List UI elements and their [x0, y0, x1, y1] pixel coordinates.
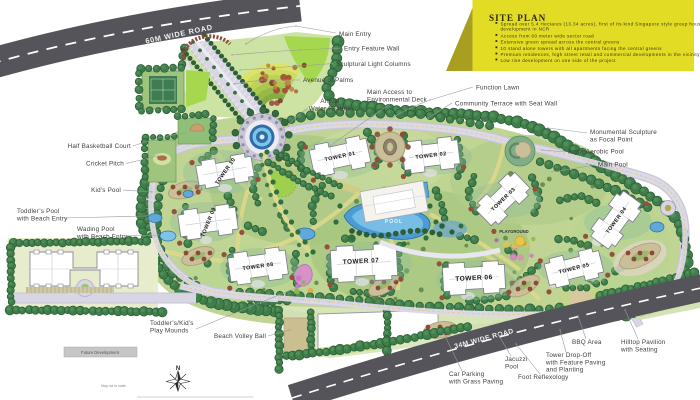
svg-text:Entry Feature Wall: Entry Feature Wall [344, 46, 400, 53]
svg-text:Low rise development on one si: Low rise development on one side of the … [501, 58, 617, 63]
svg-text:10 stand alone towers with all: 10 stand alone towers with all apartment… [501, 46, 663, 51]
svg-text:Aqua-Aerobic Pool: Aqua-Aerobic Pool [568, 149, 624, 156]
svg-text:Community Terrace with Seat Wa: Community Terrace with Seat Wall [455, 101, 557, 108]
svg-text:Future Development: Future Development [81, 350, 120, 355]
svg-text:Beach Volley Ball: Beach Volley Ball [214, 333, 266, 340]
svg-text:Extensive green spread across: Extensive green spread across the centra… [501, 40, 621, 45]
svg-text:Main Entry: Main Entry [339, 31, 372, 38]
svg-text:Toddler’s/Kid’sPlay Mounds: Toddler’s/Kid’sPlay Mounds [150, 320, 194, 334]
svg-text:N: N [176, 366, 180, 372]
svg-text:Foot Reflexology: Foot Reflexology [518, 374, 569, 381]
svg-text:POOL: POOL [385, 219, 403, 225]
svg-text:Sculptural Light Columns: Sculptural Light Columns [336, 61, 411, 68]
svg-text:Map not to scale: Map not to scale [101, 384, 126, 388]
svg-text:Cricket Pitch: Cricket Pitch [86, 161, 124, 168]
svg-text:development in NCR: development in NCR [501, 26, 550, 31]
svg-text:Premium residences, high stree: Premium residences, high street retail a… [501, 52, 700, 57]
svg-text:Access from 60 meter wide sect: Access from 60 meter wide sector road [501, 33, 595, 38]
svg-text:BBQ Area: BBQ Area [572, 339, 602, 346]
svg-text:Main Pool: Main Pool [598, 162, 628, 169]
svg-text:PLAYGROUND: PLAYGROUND [499, 229, 528, 234]
svg-text:Half Basketball Court: Half Basketball Court [68, 143, 131, 150]
svg-text:Avenue of Palms: Avenue of Palms [303, 77, 354, 84]
svg-text:Function Lawn: Function Lawn [476, 85, 520, 92]
svg-text:Kid’s Pool: Kid’s Pool [91, 187, 121, 194]
